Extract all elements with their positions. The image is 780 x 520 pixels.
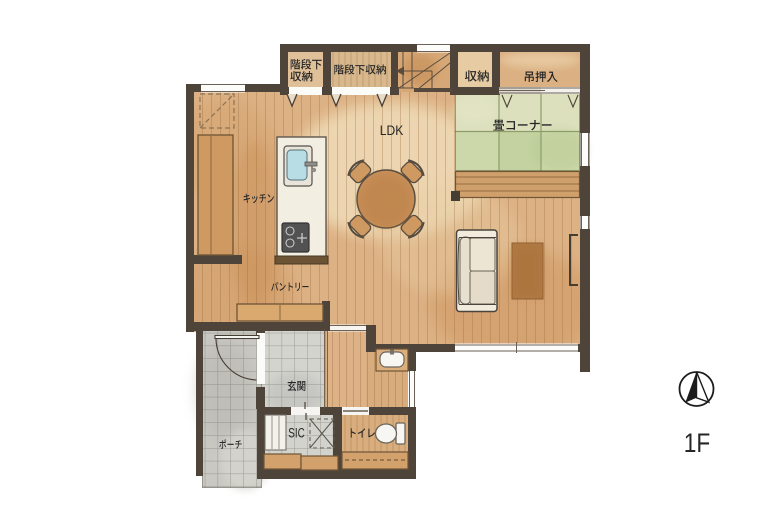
svg-text:1F: 1F [684, 428, 711, 458]
svg-text:SIC: SIC [288, 426, 305, 441]
svg-text:LDK: LDK [380, 122, 404, 138]
